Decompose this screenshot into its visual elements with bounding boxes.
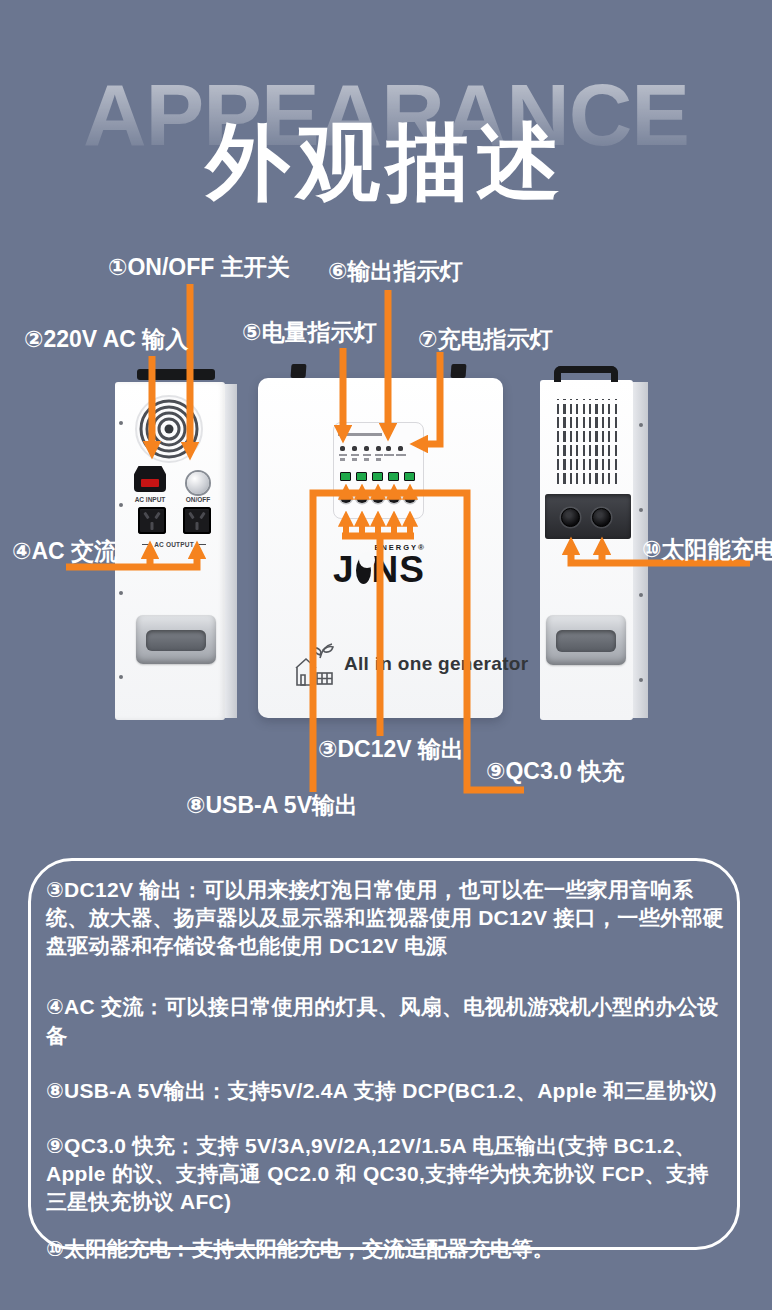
- callout-label-charge: ⑦充电指示灯: [418, 324, 552, 355]
- description-qc30: ⑨QC3.0 快充：支持 5V/3A,9V/2A,12V/1.5A 电压输出(支…: [46, 1132, 725, 1216]
- dc12v-jack: [404, 491, 416, 503]
- dash-line: [197, 544, 206, 546]
- description-usb: ⑧USB-A 5V输出：支持5V/2.4A 支持 DCP(BC1.2、Apple…: [46, 1077, 725, 1105]
- description-ac: ④AC 交流：可以接日常使用的灯具、风扇、电视机游戏机小型的办公设备: [46, 993, 725, 1049]
- solar-charge-port: [561, 508, 580, 527]
- fan-grille-icon: [133, 393, 205, 465]
- device-left-top-handle: [137, 369, 215, 380]
- led-microtext: [340, 458, 345, 461]
- dc12v-jack: [372, 491, 384, 503]
- brand-letters-ns: NS: [372, 553, 425, 587]
- led-microtext: [352, 458, 357, 461]
- onoff-main-switch-button: [187, 472, 209, 494]
- usb-a-port: [388, 472, 399, 481]
- ac-outlet-socket: [183, 507, 211, 534]
- brand-logo: ENERGY® JNS: [333, 543, 425, 587]
- callout-label-ac-in: ②220V AC 输入: [24, 324, 188, 355]
- product-appearance-infographic: APPEARANCE 外观描述 AC INPUT ON/OFF AC OUTPU…: [0, 0, 772, 1310]
- ac-input-connector: [134, 466, 166, 492]
- ac-input-label: AC INPUT: [131, 496, 169, 503]
- screw-dot: [639, 508, 643, 512]
- tagline-row: All in one generator: [293, 641, 528, 687]
- battery-level-led: [364, 446, 369, 451]
- onoff-label: ON/OFF: [181, 496, 215, 503]
- ac-input-red-slot: [141, 479, 159, 487]
- device-front-top-clip: [451, 364, 467, 378]
- callout-label-ac-out: ④AC 交流: [12, 536, 117, 567]
- screw-dot: [119, 591, 123, 595]
- led-microtext: [364, 458, 369, 461]
- dash-line: [142, 544, 151, 546]
- tagline-text: All in one generator: [344, 653, 528, 675]
- led-microtext: [363, 454, 371, 456]
- vent-grille: [557, 399, 619, 484]
- ac-output-label: AC OUTPUT: [154, 541, 194, 548]
- usb-a-port: [404, 472, 415, 481]
- description-solar: ⑩太阳能充电：支持太阳能充电，交流适配器充电等。: [46, 1235, 725, 1263]
- led-microtext: [376, 458, 381, 461]
- device-left-carry-handle-recess: [136, 615, 216, 664]
- screw-dot: [639, 593, 643, 597]
- callout-label-usb: ⑧USB-A 5V输出: [186, 790, 358, 821]
- screw-dot: [639, 423, 643, 427]
- callout-label-solar: ⑩太阳能充电: [642, 534, 772, 565]
- callout-label-onoff: ①ON/OFF 主开关: [108, 252, 290, 283]
- ac-outlet-socket: [138, 507, 166, 534]
- port-descriptions-box: ③DC12V 输出：可以用来接灯泡日常使用，也可以在一些家用音响系统、放大器、扬…: [28, 858, 740, 1250]
- eco-house-icon: [293, 641, 335, 687]
- device-front-top-clip: [291, 364, 307, 378]
- screw-dot: [119, 675, 123, 679]
- led-microtext: [384, 454, 394, 456]
- device-right-carry-handle-recess: [546, 615, 626, 665]
- usb-a-port: [356, 472, 367, 481]
- device-left-edge: [225, 384, 237, 718]
- led-microtext: [396, 454, 406, 456]
- battery-level-led: [340, 446, 345, 451]
- dc12v-jack: [340, 491, 352, 503]
- brand-wordmark: JNS: [333, 553, 425, 587]
- screw-dot: [119, 503, 123, 507]
- callout-label-battery: ⑤电量指示灯: [242, 317, 376, 348]
- led-microtext: [339, 454, 347, 456]
- page-title-chinese: 外观描述: [0, 106, 772, 220]
- brand-letter-j: J: [333, 553, 355, 587]
- screw-dot: [119, 421, 123, 425]
- output-indicator-led: [386, 446, 391, 451]
- led-microtext: [375, 454, 383, 456]
- usb-a-port: [372, 472, 383, 481]
- battery-level-led: [376, 446, 381, 451]
- led-microtext: [351, 454, 359, 456]
- callout-label-output: ⑥输出指示灯: [328, 256, 462, 287]
- crescent-o-icon: [356, 557, 371, 584]
- connector-panel: [333, 422, 424, 519]
- battery-level-led: [352, 446, 357, 451]
- usb-a-port: [340, 472, 351, 481]
- callout-label-dc12v: ③DC12V 输出: [318, 734, 464, 765]
- charge-indicator-led: [398, 446, 403, 451]
- dc12v-jack: [356, 491, 368, 503]
- panel-heading-microtext: [338, 433, 382, 436]
- dc12v-jack: [388, 491, 400, 503]
- description-dc12v: ③DC12V 输出：可以用来接灯泡日常使用，也可以在一些家用音响系统、放大器、扬…: [46, 876, 725, 960]
- ac-output-label-row: AC OUTPUT: [126, 541, 222, 548]
- screw-dot: [639, 678, 643, 682]
- solar-input-recess: [545, 494, 631, 539]
- device-right-top-handle: [554, 366, 618, 382]
- callout-label-qc30: ⑨QC3.0 快充: [486, 756, 624, 787]
- solar-charge-port: [592, 508, 611, 527]
